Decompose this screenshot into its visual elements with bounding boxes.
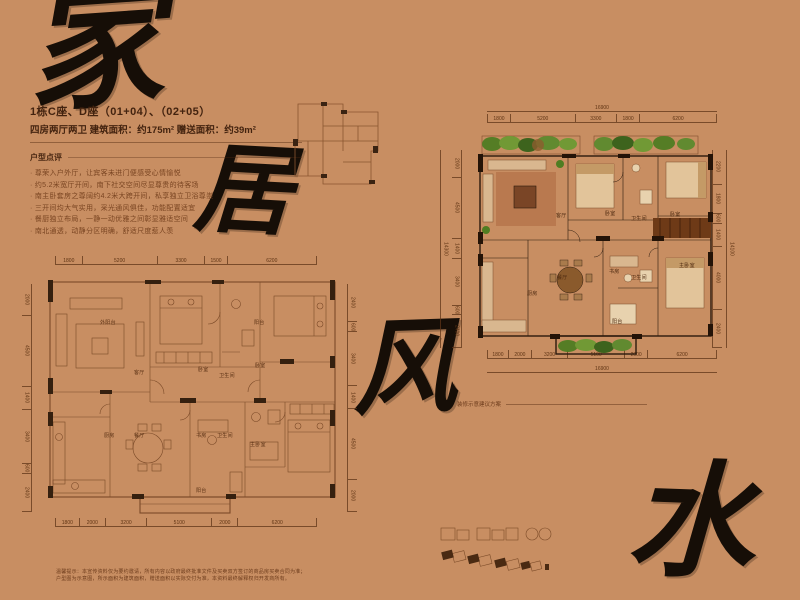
room-label: 餐厅	[134, 432, 145, 439]
dim-label: 2000	[80, 518, 106, 526]
dim-label: 2400	[22, 474, 31, 512]
bullet-line: · 三开间均大气实用，采光通风俱佳，功能配置适宜	[30, 203, 302, 215]
dim-label: 4500	[452, 178, 461, 239]
dim-label: 2000	[22, 284, 31, 316]
bullet-line: · 约5.2米宽厅开间，南下社交空间尽显尊贵的待客场	[30, 180, 302, 192]
dim-label: 5100	[147, 518, 212, 526]
room-label: 阳台	[612, 318, 623, 325]
dim-label: 1400	[452, 239, 461, 259]
dim-label: 1800	[55, 256, 83, 264]
dim-label: 600	[452, 306, 461, 315]
dim-label: 6200	[228, 256, 317, 264]
room-label: 主卧室	[250, 441, 266, 448]
dim-label: 1500	[205, 256, 227, 264]
dim-label: 16900	[595, 105, 609, 111]
room-label: 卧室	[198, 366, 209, 373]
header-block: 1栋C座、D座（01+04）、（02+05） 四房两厅两卫 建筑面积：约175m…	[30, 103, 302, 237]
right-plan-top-dims: 1800 5200 3300 1800 6200	[487, 114, 717, 123]
room-label: 客厅	[134, 369, 145, 376]
dim-label: 4500	[348, 409, 357, 480]
room-label: 卧室	[605, 210, 616, 217]
dim-label: 5200	[83, 256, 158, 264]
dim-label: 6200	[238, 518, 317, 526]
bullet-line: · 南主卧套房之尊阔约4.2米大跨开间，私享独立卫浴尊崇	[30, 191, 302, 203]
left-plan-left-dims: 2000 4500 1400 3400 600 2400	[22, 284, 32, 512]
disclaimer-line: 温馨提示：本宣传资料仅为要约邀请，所有内容以政府最终批准文件及买卖双方签订的商品…	[56, 569, 404, 576]
site-key-map	[433, 518, 558, 576]
dim-label: 1800	[55, 518, 80, 526]
review-header: 户型点评	[30, 152, 302, 163]
dim-label: 2400	[452, 315, 461, 348]
review-divider	[68, 157, 302, 158]
header-divider	[30, 142, 302, 143]
right-plan-left-total: 14300	[440, 150, 450, 348]
brochure-page: 家 居 风 水 1栋C座、D座（01+04）、（02+05） 四房两厅两卫 建筑…	[0, 0, 800, 600]
dim-label: 3300	[576, 114, 618, 122]
right-plan-top-total: 16900	[487, 103, 717, 112]
dim-label: 1800	[487, 114, 511, 122]
dim-label: 4500	[22, 316, 31, 387]
left-plan-right-dims: 2400 600 3400 1400 4500 2000	[347, 284, 357, 512]
disclaimer-line: 户型图为示意图，所示面积为建筑面积，赠送面积以实际交付为准，本资料最终解释权归开…	[56, 576, 404, 583]
dim-label: 2000	[212, 518, 238, 526]
room-label: 卫生间	[631, 274, 647, 281]
room-label: 卫生间	[631, 215, 647, 222]
disclaimer: 温馨提示：本宣传资料仅为要约邀请，所有内容以政府最终批准文件及买卖双方签订的商品…	[56, 569, 404, 583]
room-label: 主卧室	[679, 262, 695, 269]
room-label: 书房	[196, 432, 207, 439]
room-label: 卧室	[255, 362, 266, 369]
left-plan-bottom-dims: 1800 2000 3200 5100 2000 6200	[55, 518, 317, 527]
dim-label: 3400	[452, 259, 461, 306]
dim-label: 2400	[348, 284, 357, 322]
dim-label: 600	[22, 464, 31, 474]
bullet-line: · 餐厨独立布局，一静一动优雅之间彰显雅适空间	[30, 214, 302, 226]
room-label: 书房	[609, 268, 620, 275]
review-bullets: · 尊荣入户外厅，让宾客未进门便感受心情愉悦 · 约5.2米宽厅开间，南下社交空…	[30, 168, 302, 237]
room-label: 厨房	[527, 290, 538, 297]
floor-plan-color	[468, 128, 723, 370]
room-label: 卫生间	[217, 432, 233, 439]
dim-label: 3400	[348, 332, 357, 386]
dim-label: 2000	[348, 480, 357, 512]
caption-rule	[506, 404, 647, 405]
plan-caption: 装修示意建议方案	[457, 400, 501, 408]
plan-caption-row: 装修示意建议方案	[457, 400, 647, 408]
dim-label: 2000	[452, 150, 461, 178]
room-label: 阳台	[254, 319, 265, 326]
dim-label: 600	[348, 322, 357, 332]
key-plan	[283, 96, 388, 196]
room-label: 阳台	[196, 487, 207, 494]
right-plan-left-dims: 2000 4500 1400 3400 600 2400	[452, 150, 462, 348]
room-label: 卧室	[670, 211, 681, 218]
bullet-line: · 尊荣入户外厅，让宾客未进门便感受心情愉悦	[30, 168, 302, 180]
dim-label: 3300	[158, 256, 206, 264]
left-plan-top-dims: 1800 5200 3300 1500 6200	[55, 256, 317, 265]
review-title: 户型点评	[30, 152, 62, 163]
calligraphy-shui: 水	[626, 456, 756, 586]
unit-title: 1栋C座、D座（01+04）、（02+05）	[30, 103, 302, 119]
room-label: 客厅	[556, 212, 567, 219]
room-label: 外阳台	[100, 319, 116, 326]
dim-label: 3400	[22, 410, 31, 464]
room-label: 卫生间	[219, 372, 235, 379]
room-label: 餐厅	[557, 274, 568, 281]
dim-label: 3200	[106, 518, 147, 526]
floor-plan-line	[40, 272, 345, 517]
dim-label: 6200	[640, 114, 717, 122]
right-plan-right-total: 14100	[726, 150, 736, 348]
dim-label: 1400	[348, 386, 357, 409]
room-label: 厨房	[104, 432, 115, 439]
dim-label: 1800	[617, 114, 640, 122]
dim-label: 5200	[511, 114, 576, 122]
unit-subtitle: 四房两厅两卫 建筑面积：约175m² 赠送面积：约39m²	[30, 122, 302, 136]
dim-label: 1400	[22, 387, 31, 410]
bullet-line: · 南北通透，动静分区明确，舒适尺度惹人羡	[30, 226, 302, 238]
